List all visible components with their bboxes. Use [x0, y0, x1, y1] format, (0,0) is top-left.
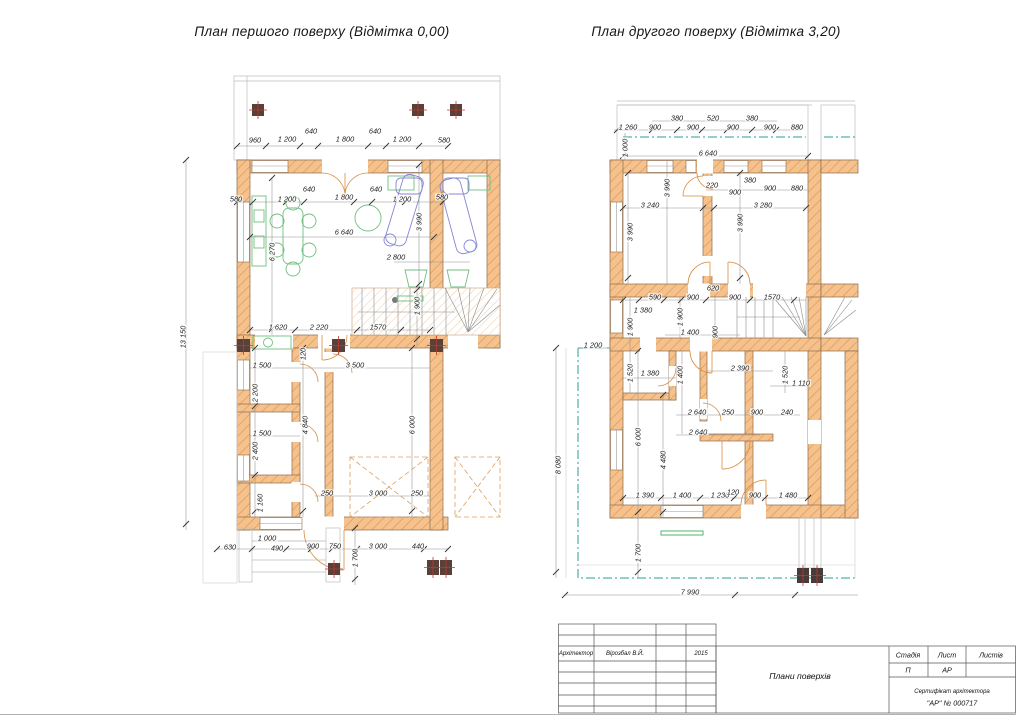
dimension-label: 640	[369, 185, 383, 192]
dimension-label: 1570	[763, 293, 781, 300]
sheet-label: Лист	[938, 651, 957, 660]
dimension-label: 900	[648, 123, 662, 130]
dimension-label: 750	[328, 542, 342, 549]
dimension-label: 380	[743, 176, 757, 183]
dimension-label: 1 110	[791, 379, 811, 386]
stage-label: Стадія	[896, 651, 921, 660]
dimension-label: 380	[670, 114, 684, 121]
dimension-label: 640	[368, 127, 382, 134]
dimension-label: 120	[726, 488, 740, 495]
dimension-label: 4 480	[659, 450, 666, 471]
dimension-label: 900	[686, 123, 700, 130]
dimension-label: 2 640	[687, 408, 708, 415]
dimension-label: 3 990	[415, 212, 422, 233]
dimension-label: 3 000	[368, 489, 389, 496]
dimension-label: 13 150	[179, 325, 186, 350]
dimension-label: 1 900	[626, 317, 633, 338]
dimension-label: 900	[728, 293, 742, 300]
dimension-label: 1 000	[621, 138, 628, 159]
dimension-label: 3 240	[640, 201, 661, 208]
architect-name: Вірозбал В.Й.	[606, 651, 644, 657]
dimension-label: 1 400	[676, 365, 683, 386]
dimension-label: 880	[790, 123, 804, 130]
certificate-line1: Сертифікат архітектора	[914, 689, 990, 695]
dimension-label: 1 520	[781, 365, 788, 386]
window-sill-icon	[661, 531, 703, 535]
dimension-label: 250	[410, 489, 424, 496]
dimension-label: 6 640	[698, 149, 719, 156]
dimension-label: 1 520	[626, 363, 633, 384]
dimension-label: 900	[686, 293, 700, 300]
dimension-label: 380	[745, 114, 759, 121]
round-table-icon	[355, 205, 381, 231]
dimension-label: 8 080	[554, 455, 561, 476]
dimension-label: 490	[270, 544, 284, 551]
dimension-label: 1 700	[351, 548, 358, 569]
dimension-label: 6 640	[334, 228, 355, 235]
right-plan	[553, 101, 858, 598]
dimension-label: 2 640	[688, 428, 709, 435]
dimension-label: 240	[780, 408, 794, 415]
dimension-label: 120	[299, 347, 306, 361]
dimension-label: 1 200	[277, 135, 298, 142]
dimension-label: 2 220	[309, 323, 330, 330]
left-plan-title: План першого поверху (Відмітка 0,00)	[194, 24, 449, 39]
dimension-label: 520	[706, 114, 720, 121]
dimension-label: 6 000	[634, 427, 641, 448]
dimension-label: 1 800	[334, 193, 355, 200]
dimension-label: 640	[302, 185, 316, 192]
right-plan-title: План другого поверху (Відмітка 3,20)	[591, 24, 840, 39]
dimension-label: 4 840	[301, 415, 308, 436]
dimension-label: 1 260	[618, 123, 639, 130]
stage-value: П	[905, 666, 910, 675]
dimension-label: 900	[711, 325, 718, 339]
dimension-label: 3 990	[663, 178, 670, 199]
dimension-label: 1 380	[633, 306, 654, 313]
dimension-label: 2 390	[730, 364, 751, 371]
dimension-label: 1 390	[635, 491, 656, 498]
drawing-sheet: { "titles": { "left": "План першого пове…	[0, 0, 1024, 724]
stairs-icon	[737, 297, 856, 338]
dimension-label: 1570	[369, 323, 387, 330]
document-title: Плани поверхів	[769, 671, 831, 681]
dimension-label: 2 200	[251, 383, 258, 404]
column-markers	[794, 518, 826, 586]
dimension-label: 880	[790, 184, 804, 191]
dimension-label: 640	[304, 127, 318, 134]
dimension-label: 250	[721, 408, 735, 415]
dimension-label: 900	[306, 542, 320, 549]
dimension-label: 1 380	[640, 369, 661, 376]
dimension-label: 1 400	[672, 491, 693, 498]
dimension-label: 3 000	[368, 542, 389, 549]
dimension-label: 1 620	[268, 323, 289, 330]
dimension-label: 250	[320, 489, 334, 496]
dimension-label: 2 400	[251, 441, 258, 462]
dimension-label: 900	[763, 184, 777, 191]
column-markers	[325, 557, 455, 578]
dimension-label: 2 800	[386, 253, 407, 260]
dimension-label: 1 500	[252, 429, 273, 436]
dimension-label: 3 280	[753, 201, 774, 208]
dimension-label: 1 200	[392, 135, 413, 142]
dimension-label: 900	[748, 491, 762, 498]
roof-dashed-outline	[350, 457, 500, 517]
architect-role-label: Архітектор	[559, 651, 593, 657]
dimension-label: 1 800	[335, 135, 356, 142]
sheet-value: АР	[942, 666, 952, 675]
dimension-label: 220	[705, 181, 719, 188]
dining-set-icon	[270, 196, 316, 276]
dimension-label: 1 900	[676, 307, 683, 328]
dimension-label: 1 900	[413, 296, 420, 317]
dimension-label: 620	[706, 284, 720, 291]
dimension-label: 900	[726, 123, 740, 130]
dimension-label: 580	[229, 195, 243, 202]
dimension-label: 1 200	[392, 195, 413, 202]
dimension-label: 7 990	[680, 588, 701, 595]
dimension-label: 1 200	[583, 341, 604, 348]
dimension-label: 3 990	[736, 213, 743, 234]
dimension-label: 580	[435, 193, 449, 200]
dimension-label: 3 500	[345, 361, 366, 368]
year-value: 2015	[694, 651, 707, 657]
dimension-label: 1 500	[252, 361, 273, 368]
dimension-label: 580	[437, 136, 451, 143]
dimension-label: 1 200	[277, 195, 298, 202]
floor-plan-drawing	[0, 0, 1024, 724]
certificate-line2: "АР" № 000717	[927, 699, 977, 708]
dimension-label: 440	[411, 542, 425, 549]
dimension-label: 590	[648, 293, 662, 300]
dimension-label: 630	[223, 543, 237, 550]
sheets-label: Листів	[979, 651, 1003, 660]
dimension-label: 1 400	[680, 328, 701, 335]
dimension-label: 960	[248, 136, 262, 143]
dimension-label: 6 270	[268, 242, 275, 263]
dimension-label: 900	[750, 408, 764, 415]
dimension-label: 1 700	[634, 543, 641, 564]
dimension-label: 3 990	[626, 222, 633, 243]
left-plan	[183, 76, 500, 585]
dimension-label: 900	[728, 188, 742, 195]
title-block: Архітектор Вірозбал В.Й. 2015 Плани пове…	[558, 618, 1016, 715]
dimension-label: 1 000	[257, 534, 278, 541]
dimension-label: 900	[763, 123, 777, 130]
dimension-ticks	[183, 143, 451, 582]
dimension-label: 6 000	[408, 415, 415, 436]
dimension-label: 1 480	[778, 491, 799, 498]
dimension-label: 1 160	[256, 493, 263, 514]
column-markers	[249, 101, 465, 119]
